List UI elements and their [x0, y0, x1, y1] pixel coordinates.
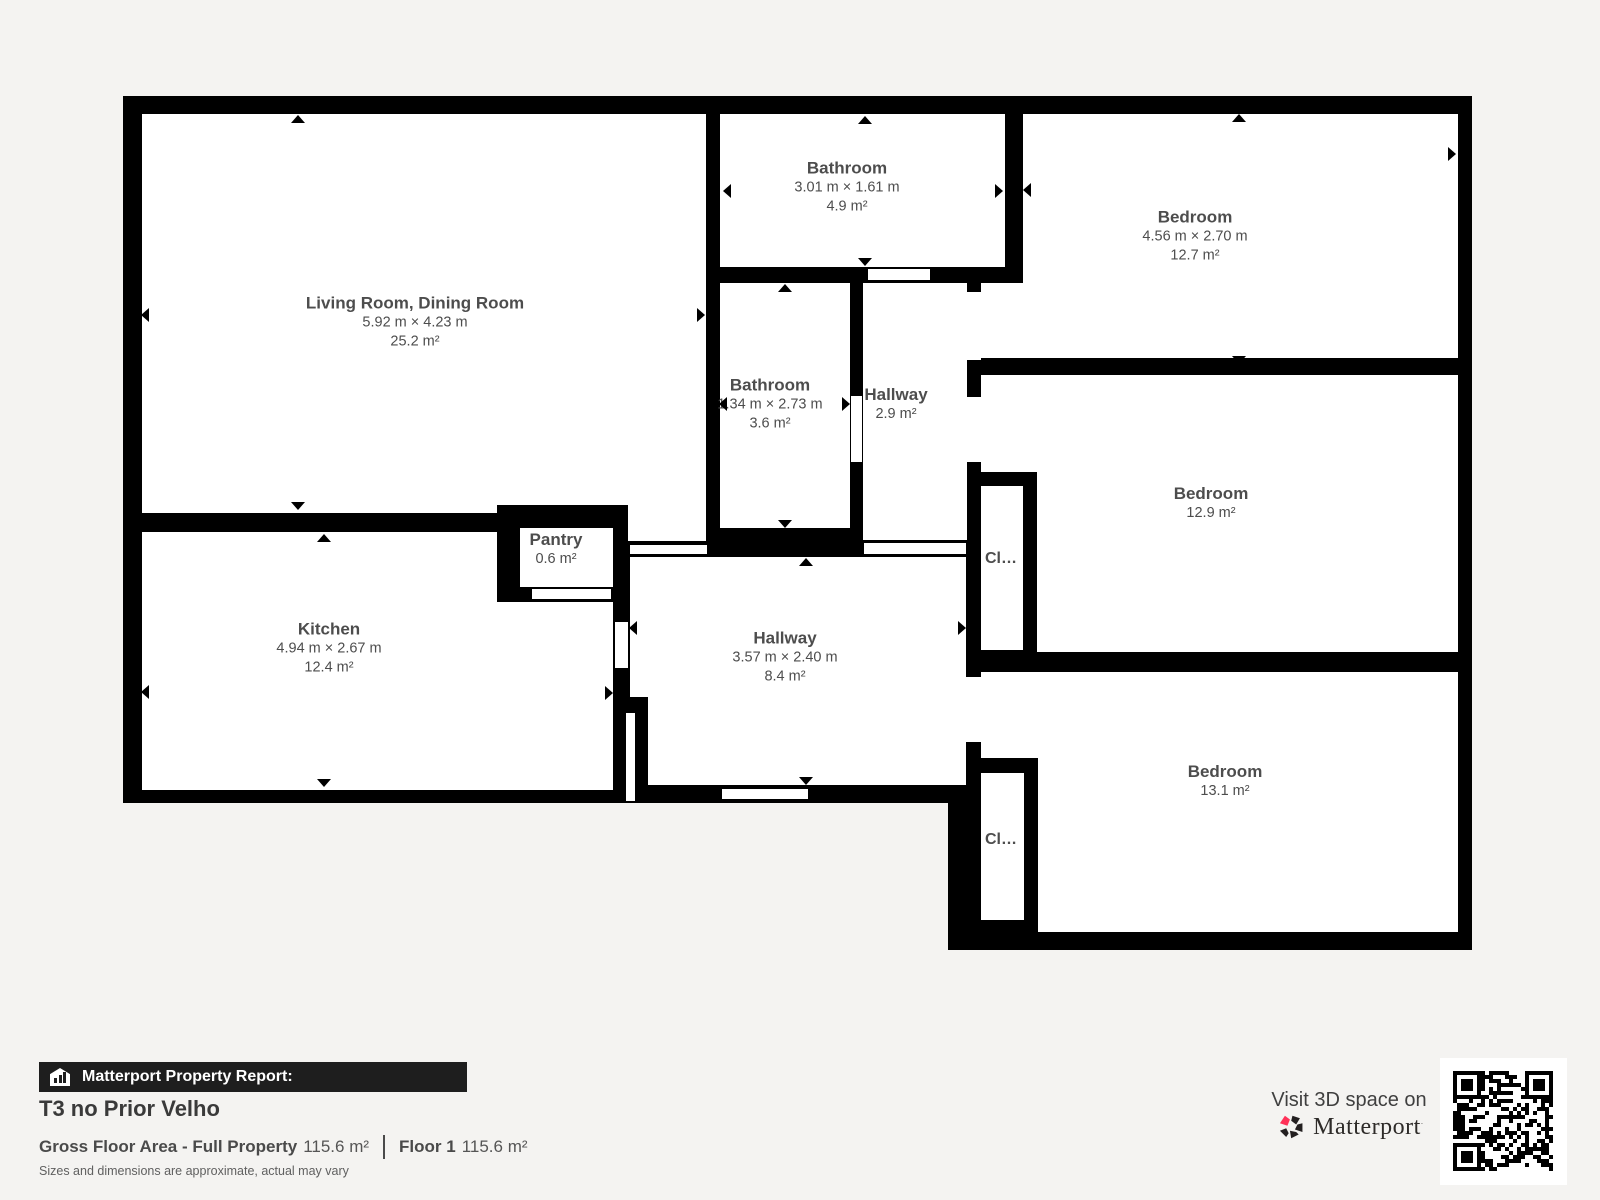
label-hallway-small: Hallway 2.9 m² — [864, 385, 927, 424]
measure-arrow-icon — [778, 284, 792, 292]
label-bathroom-top: Bathroom 3.01 m × 1.61 m 4.9 m² — [794, 159, 899, 216]
measure-arrow-icon — [629, 621, 637, 635]
property-title: T3 no Prior Velho — [39, 1096, 220, 1122]
measure-arrow-icon — [317, 534, 331, 542]
measure-arrow-icon — [317, 779, 331, 787]
passage-hallways — [864, 543, 966, 554]
qr-code — [1453, 1071, 1553, 1171]
floor-area-stats: Gross Floor Area - Full Property 115.6 m… — [39, 1135, 528, 1159]
label-closet-1: Cl… — [985, 549, 1017, 569]
closet-2-wall — [981, 920, 1024, 932]
report-bar-label: Matterport Property Report: — [82, 1068, 293, 1086]
matterport-pinwheel-icon — [1276, 1112, 1306, 1142]
measure-arrow-icon — [858, 258, 872, 266]
visit-3d-text: Visit 3D space on — [1271, 1089, 1426, 1112]
door-kitchen — [615, 622, 628, 668]
measure-arrow-icon — [1232, 356, 1246, 364]
measure-arrow-icon — [778, 520, 792, 528]
measure-arrow-icon — [291, 502, 305, 510]
measure-arrow-icon — [141, 308, 149, 322]
door-pantry — [532, 589, 611, 599]
label-living-room: Living Room, Dining Room 5.92 m × 4.23 m… — [306, 294, 524, 351]
door-bedroom-mid — [966, 397, 981, 462]
disclaimer-text: Sizes and dimensions are approximate, ac… — [39, 1164, 349, 1178]
measure-arrow-icon — [719, 397, 727, 411]
measure-arrow-icon — [1448, 147, 1456, 161]
measure-arrow-icon — [697, 308, 705, 322]
measure-arrow-icon — [842, 397, 850, 411]
gross-floor-area-value: 115.6 m² — [303, 1137, 369, 1157]
qr-code-box — [1440, 1058, 1567, 1185]
door-entry — [722, 789, 808, 799]
label-closet-2: Cl… — [985, 830, 1017, 850]
room-bedroom-top-pocket — [981, 283, 1023, 358]
label-bathroom-mid: Bathroom 1.34 m × 2.73 m 3.6 m² — [717, 376, 822, 433]
measure-arrow-icon — [723, 184, 731, 198]
floor-label: Floor 1 — [399, 1137, 456, 1157]
room-bedroom-bottom — [981, 672, 1458, 932]
stats-divider — [383, 1135, 385, 1159]
measure-arrow-icon — [605, 686, 613, 700]
label-bedroom-bottom: Bedroom 13.1 m² — [1188, 762, 1263, 801]
matterport-wordmark: Matterport — [1313, 1114, 1421, 1141]
entry-wall-gap — [626, 713, 635, 801]
measure-arrow-icon — [858, 116, 872, 124]
label-bedroom-top: Bedroom 4.56 m × 2.70 m 12.7 m² — [1142, 208, 1247, 265]
closet-2-wall — [1024, 758, 1038, 932]
label-bedroom-mid: Bedroom 12.9 m² — [1174, 484, 1249, 523]
measure-arrow-icon — [799, 777, 813, 785]
door-bedroom-top — [966, 292, 981, 360]
gross-floor-area-label: Gross Floor Area - Full Property — [39, 1137, 297, 1157]
measure-arrow-icon — [1023, 183, 1031, 197]
floor-plan: Living Room, Dining Room 5.92 m × 4.23 m… — [0, 0, 1600, 1200]
door-bedroom-bottom — [966, 677, 981, 742]
label-kitchen: Kitchen 4.94 m × 2.67 m 12.4 m² — [276, 620, 381, 677]
door-bathroom-top — [868, 269, 930, 280]
room-living-notch — [625, 513, 706, 541]
matterport-logo: Matterport˙ — [1276, 1112, 1424, 1142]
measure-arrow-icon — [799, 558, 813, 566]
property-report-icon — [50, 1068, 70, 1086]
door-bathroom-mid — [851, 396, 862, 462]
measure-arrow-icon — [958, 621, 966, 635]
report-header-bar: Matterport Property Report: — [39, 1062, 467, 1092]
door-living-hallway — [630, 545, 707, 554]
label-pantry: Pantry 0.6 m² — [530, 530, 583, 569]
measure-arrow-icon — [141, 685, 149, 699]
measure-arrow-icon — [995, 184, 1003, 198]
floor-value: 115.6 m² — [462, 1137, 528, 1157]
measure-arrow-icon — [1232, 114, 1246, 122]
measure-arrow-icon — [291, 115, 305, 123]
label-hallway-main: Hallway 3.57 m × 2.40 m 8.4 m² — [732, 629, 837, 686]
